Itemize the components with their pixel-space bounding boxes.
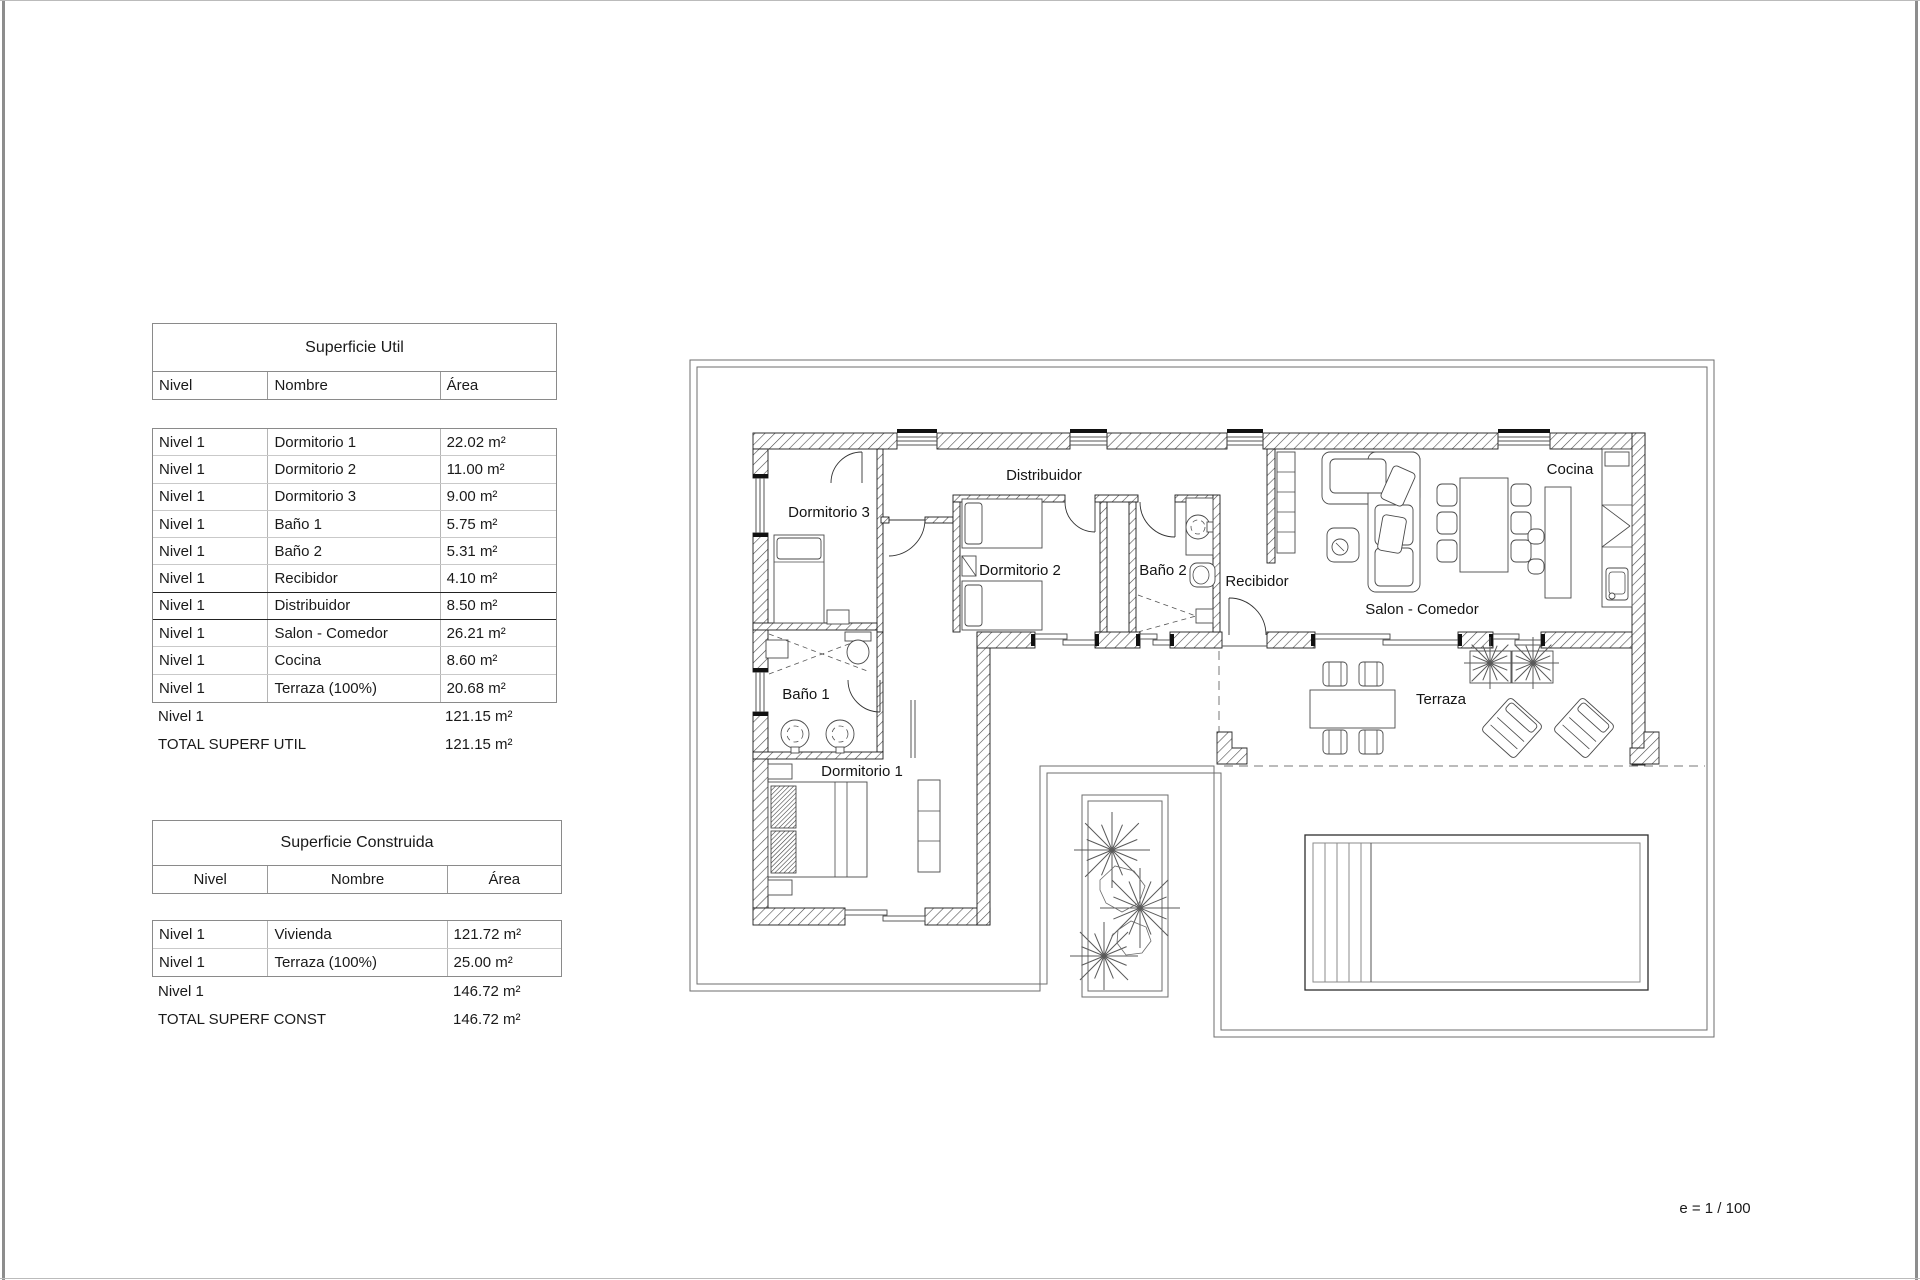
lounge-chair (1553, 697, 1615, 759)
sink-icon (826, 720, 854, 748)
outdoor-chair (1323, 662, 1347, 686)
plant-icon (1507, 637, 1559, 689)
dormitorio3-furniture (774, 535, 849, 624)
room-label-banyo2: Baño 2 (1139, 562, 1187, 579)
toilet-icon (847, 640, 869, 664)
shower-fixture (1196, 609, 1213, 623)
salon-furniture (1322, 452, 1531, 592)
outdoor-table (1310, 690, 1395, 728)
door-tag (827, 610, 849, 624)
toilet-icon (1190, 563, 1215, 587)
faucet-icon (1609, 593, 1615, 599)
chair (1437, 540, 1457, 562)
scale-label: e = 1 / 100 (1650, 1200, 1780, 1217)
stool (1528, 529, 1544, 544)
room-label-dormitorio2: Dormitorio 2 (979, 562, 1061, 579)
outdoor-chair (1359, 730, 1383, 754)
nightstand (768, 880, 792, 895)
pillow (965, 503, 982, 544)
room-label-dormitorio1: Dormitorio 1 (821, 763, 903, 780)
dormitorio2-door-icon (1065, 502, 1095, 532)
closet (1277, 452, 1295, 553)
pillow (965, 585, 982, 626)
floor-plan-drawing: Dormitorio 3 Baño 1 Dormitorio 1 Distrib… (0, 0, 1920, 1280)
dining-table (1460, 478, 1508, 572)
lounge-chair (1481, 697, 1543, 759)
chair (1437, 512, 1457, 534)
chair (1511, 484, 1531, 506)
nightstand (768, 764, 792, 779)
outdoor-chair (1359, 662, 1383, 686)
outdoor-chair (1323, 730, 1347, 754)
room-label-cocina: Cocina (1547, 461, 1594, 478)
chair (1511, 512, 1531, 534)
chair (1437, 484, 1457, 506)
room-label-recibidor: Recibidor (1225, 573, 1288, 590)
plan-sheet: { "page": { "scale_label": "e = 1 / 100"… (0, 0, 1920, 1280)
room-label-banyo1: Baño 1 (782, 686, 830, 703)
shrub-icon (1070, 922, 1138, 990)
room-label-salon-comedor: Salon - Comedor (1365, 601, 1478, 618)
room-label-terraza: Terraza (1416, 691, 1467, 708)
shower-fixture (766, 640, 788, 658)
room-label-dormitorio3: Dormitorio 3 (788, 504, 870, 521)
dormitorio1-furniture (768, 764, 940, 895)
terrace-step (1217, 732, 1247, 764)
stool (1528, 559, 1544, 574)
garden-planter (1070, 795, 1180, 997)
dormitorio3-door-icon (831, 452, 862, 483)
sink-icon (781, 720, 809, 748)
entry-door-icon (1229, 598, 1266, 635)
kitchen-island (1545, 487, 1571, 598)
room-label-distribuidor: Distribuidor (1006, 467, 1082, 484)
wardrobe (918, 780, 940, 872)
sink-icon (1186, 515, 1210, 539)
hall-door-icon (889, 520, 925, 556)
banyo2-door-icon (1140, 502, 1175, 537)
pool (1305, 835, 1648, 990)
pillow (771, 786, 796, 828)
recibidor-furniture (1277, 452, 1295, 553)
fridge (1605, 452, 1629, 466)
banyo1-door-icon (848, 680, 880, 712)
chair (1511, 540, 1531, 562)
pillow (777, 538, 821, 559)
pillow (771, 831, 796, 873)
